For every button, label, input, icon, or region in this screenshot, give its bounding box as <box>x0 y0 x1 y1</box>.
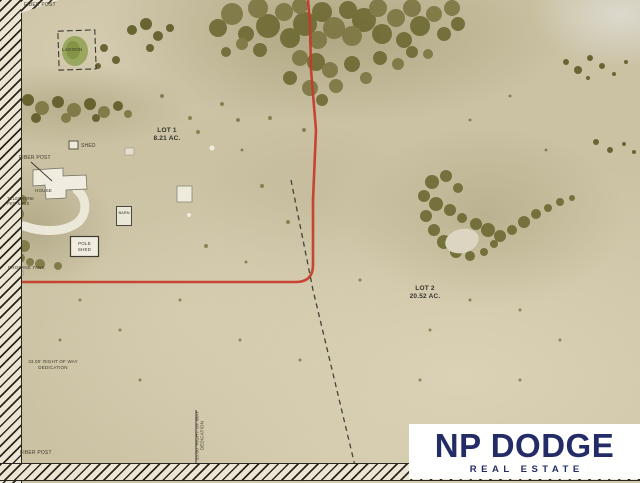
house-label: HOUSE <box>35 188 52 193</box>
aerial-plat-map: FIBER POST LAGOON LOT 1 8.21 AC. SHED FI… <box>0 0 640 483</box>
fence-dashed-line <box>291 180 356 470</box>
left-right-of-way-hatch <box>0 0 22 483</box>
row-dedication-label: 33.00' RIGHT OF WAY DEDICATION <box>26 359 80 372</box>
shed-label: SHED <box>81 143 96 149</box>
lot2-area: 20.52 AC. <box>400 293 450 301</box>
row-dedication-vertical-label: 33.00' RIGHT OF WAY DEDICATION <box>195 404 206 468</box>
telephone-ped-label: TELEPHONE PED & RIS <box>7 196 41 207</box>
lot1-area: 8.21 AC. <box>144 135 190 143</box>
lagoon-label: LAGOON <box>62 47 82 52</box>
buildings <box>16 141 215 275</box>
field-scrub-specks <box>59 94 562 382</box>
fiber-post-top-label: FIBER POST <box>24 2 56 8</box>
outbuilding <box>177 186 192 202</box>
shed-building <box>69 141 78 149</box>
np-dodge-brand-text: NP DODGE <box>435 428 614 462</box>
lot2-name: LOT 2 <box>400 285 450 293</box>
small-structure <box>125 148 134 155</box>
fiber-post-bottom-label: FIBER POST <box>20 450 52 456</box>
lot2-label: LOT 2 20.52 AC. <box>400 285 450 301</box>
propane-tank-label: PROPANE TANK <box>8 265 45 270</box>
fiber-post-mid-label: FIBER POST <box>19 155 51 161</box>
barn-label: BARN <box>117 211 131 216</box>
pole-shed-label: POLE SHED <box>71 241 98 253</box>
np-dodge-tagline-text: REAL ESTATE <box>465 465 583 475</box>
lot1-name: LOT 1 <box>144 127 190 135</box>
np-dodge-logo: NP DODGE REAL ESTATE <box>409 424 640 479</box>
lot1-label: LOT 1 8.21 AC. <box>144 127 190 143</box>
tree-clusters <box>12 0 636 382</box>
